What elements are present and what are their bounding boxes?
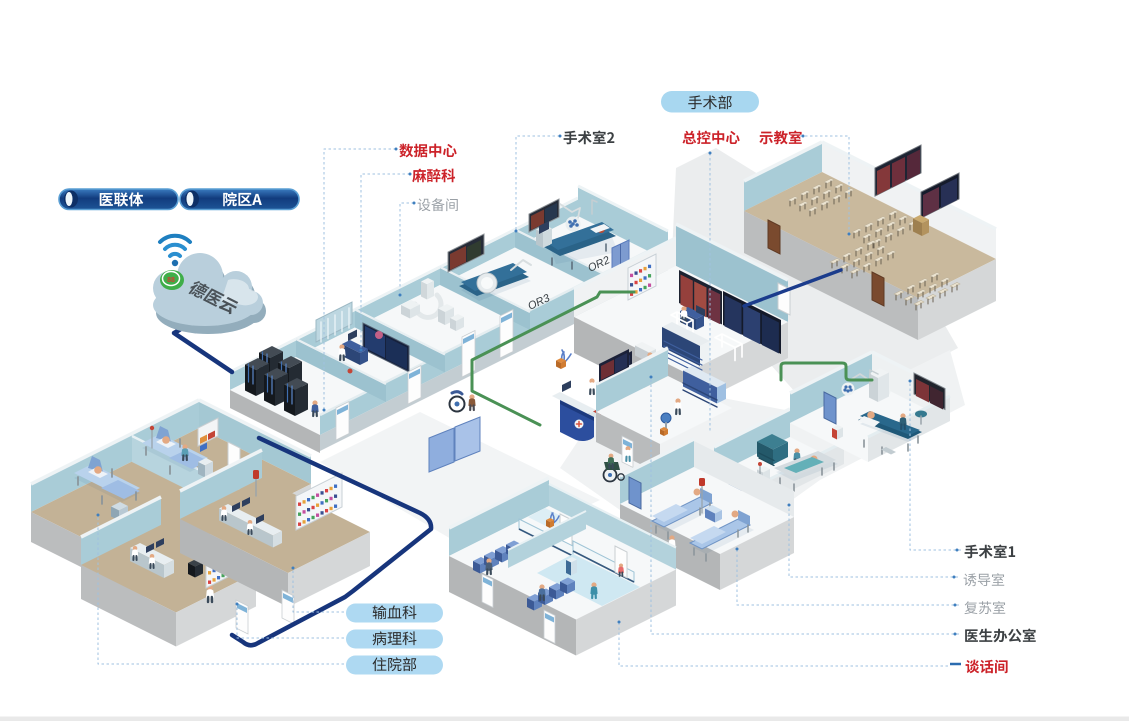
svg-text:88: 88 [167, 277, 175, 284]
